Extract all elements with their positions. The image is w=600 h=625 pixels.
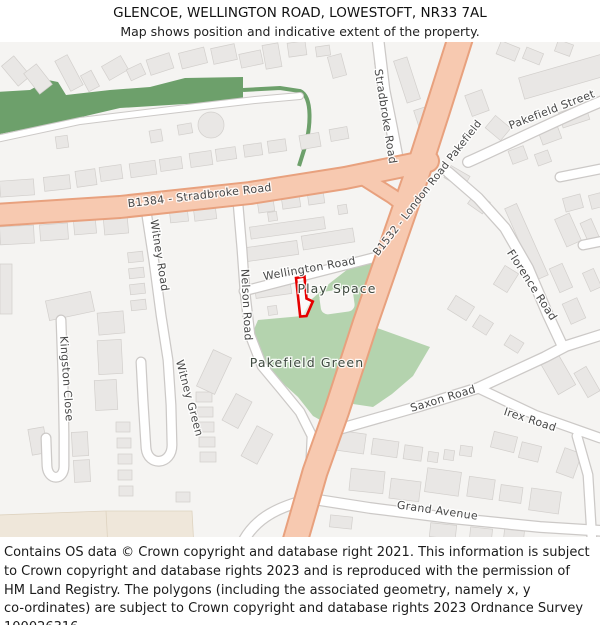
building [499, 485, 523, 504]
copyright-line: co-ordinates) are subject to Crown copyr… [4, 600, 596, 619]
building [459, 445, 472, 457]
building [129, 267, 145, 279]
building [427, 451, 438, 462]
building [128, 251, 144, 263]
building [215, 147, 236, 162]
building [467, 476, 496, 499]
building [443, 449, 454, 460]
building [117, 438, 131, 448]
building [130, 283, 146, 295]
copyright-line: HM Land Registry. The polygons (includin… [4, 582, 596, 601]
building [0, 179, 35, 197]
building [267, 211, 277, 221]
map: B1384 - Stradbroke Road B1532 - London R… [0, 0, 600, 625]
building [97, 339, 123, 374]
road-segment [583, 241, 600, 245]
building [349, 468, 385, 493]
copyright-line: 100026316. [4, 619, 596, 625]
circular-structure [198, 112, 224, 138]
label-play-space: Play Space [297, 281, 376, 296]
building [73, 460, 90, 483]
building [43, 175, 70, 192]
building [243, 143, 262, 157]
building [71, 432, 88, 457]
building [116, 422, 130, 432]
building [118, 470, 132, 480]
building [131, 299, 147, 311]
building [94, 379, 118, 410]
building [99, 165, 123, 182]
building [329, 515, 352, 529]
building [196, 392, 212, 402]
building [267, 305, 277, 315]
building [159, 157, 182, 172]
copyright-line: to Crown copyright and database rights 2… [4, 563, 596, 582]
building [299, 132, 321, 149]
building [119, 486, 133, 496]
label-pakefield-green: Pakefield Green [250, 355, 364, 370]
building [0, 264, 12, 314]
copyright-notice: Contains OS data © Crown copyright and d… [0, 537, 600, 625]
building [0, 225, 34, 245]
building [176, 492, 190, 502]
building [97, 311, 125, 335]
building [389, 478, 421, 502]
building [75, 169, 97, 188]
page-title: GLENCOE, WELLINGTON ROAD, LOWESTOFT, NR3… [0, 0, 600, 21]
map-canvas: B1384 - Stradbroke Road B1532 - London R… [0, 0, 600, 625]
building [529, 488, 562, 514]
building [149, 129, 163, 143]
building [287, 41, 307, 57]
building [337, 204, 347, 214]
building [371, 438, 399, 457]
building [315, 45, 330, 57]
building [177, 123, 193, 135]
building [403, 445, 423, 461]
building [424, 468, 461, 496]
property-map-report: B1384 - Stradbroke Road B1532 - London R… [0, 0, 600, 625]
building [200, 452, 216, 462]
page-subtitle: Map shows position and indicative extent… [0, 21, 600, 39]
building [267, 139, 286, 153]
building [189, 151, 213, 168]
building [199, 437, 215, 447]
building [55, 135, 69, 149]
copyright-line: Contains OS data © Crown copyright and d… [4, 544, 596, 563]
building [39, 223, 68, 241]
header: GLENCOE, WELLINGTON ROAD, LOWESTOFT, NR3… [0, 0, 600, 42]
building [118, 454, 132, 464]
